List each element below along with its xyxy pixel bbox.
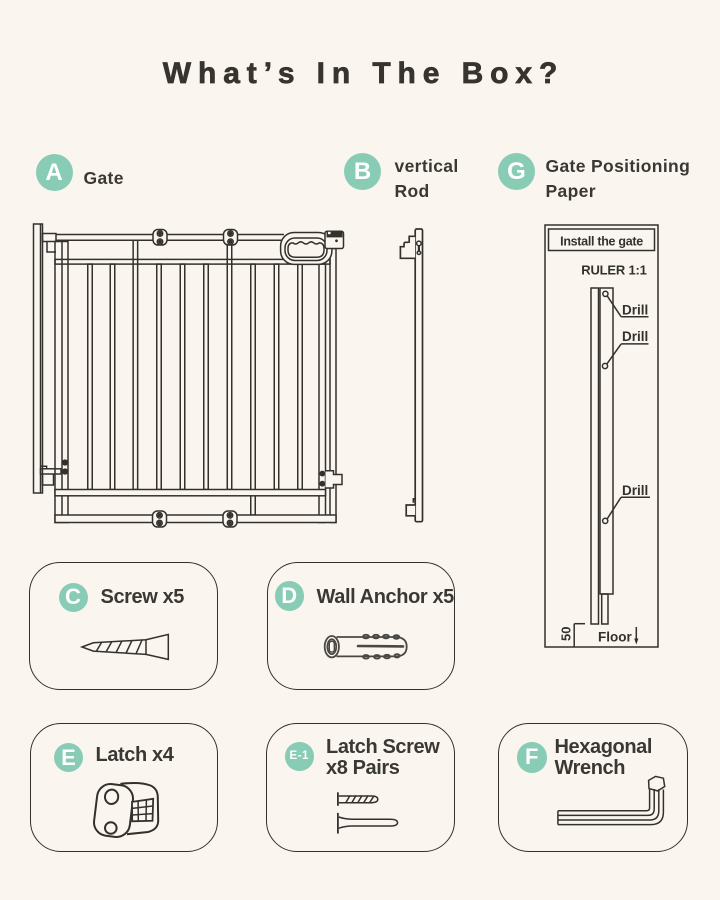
svg-text:RULER 1:1: RULER 1:1 xyxy=(581,263,646,278)
svg-text:Drill: Drill xyxy=(622,303,648,318)
svg-text:Install the gate: Install the gate xyxy=(560,235,643,249)
svg-text:50: 50 xyxy=(559,627,574,641)
svg-text:Drill: Drill xyxy=(622,329,648,344)
svg-text:Floor: Floor xyxy=(598,630,632,645)
svg-text:Drill: Drill xyxy=(622,483,648,498)
